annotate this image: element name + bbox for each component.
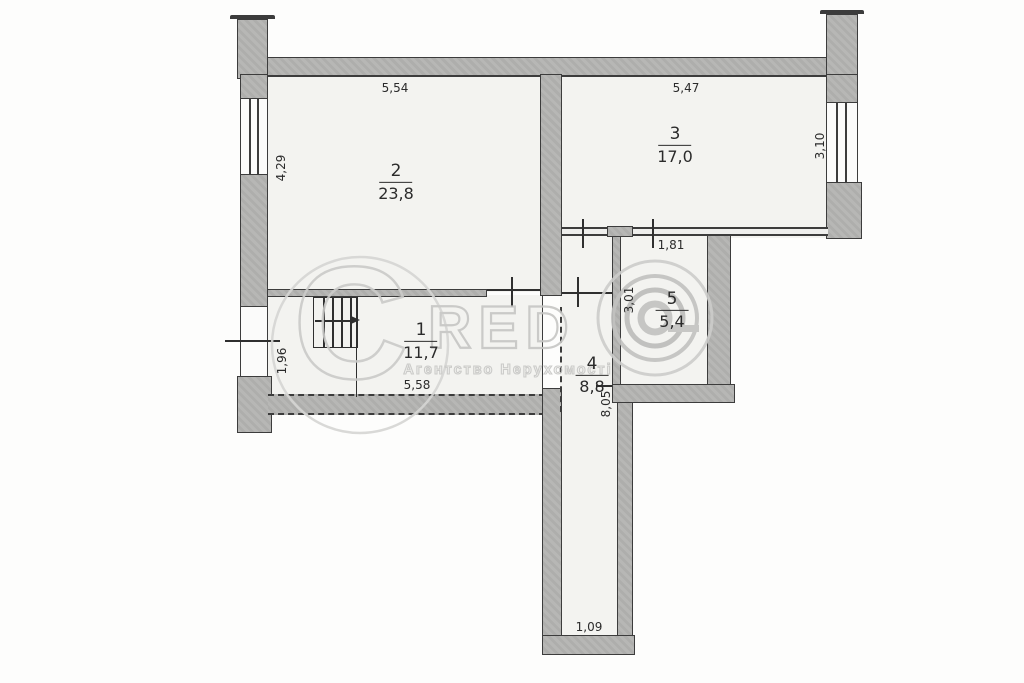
window-symbol-left-bottom [240,306,268,378]
corridor-bottom-wall [542,635,635,655]
dimension-tick [582,219,584,248]
dim-room1-width: 5,58 [404,378,431,392]
room-number: 3 [659,125,692,146]
dim-corridor-width: 1,09 [576,620,603,634]
right-wall-upper [826,74,858,104]
dim-room5-height: 3,01 [622,287,636,314]
stair-tread-line [341,298,343,347]
left-wall-bottom-block [237,376,272,433]
window-glazing-line [249,99,251,175]
room-1-label: 1 11,7 [403,321,439,361]
room-number: 1 [405,321,438,342]
room3-bottom-thin-wall [562,227,828,236]
room-3-label: 3 17,0 [657,125,693,165]
window-glazing-line [845,103,847,183]
room-area: 11,7 [403,344,439,362]
room-area: 5,4 [656,313,689,331]
dimension-tick [511,277,513,307]
window-symbol-right [826,102,858,184]
door-opening-lintel [487,289,540,291]
open-boundary-room1-room4 [560,307,562,412]
dimension-tick [225,340,280,342]
right-pillar-cap [820,10,864,14]
dim-room3-height: 3,10 [813,133,827,160]
left-wall-upper [240,74,268,100]
window-symbol-left-top [240,98,268,176]
corridor-right-wall [617,384,633,655]
partition-room4-room5 [612,235,621,387]
stairs-direction-arrow [315,320,352,322]
room-4-label: 4 8,8 [576,355,609,395]
room-5-label: 5 5,4 [656,290,689,330]
right-wall-lower-block [826,182,862,239]
wall-room2-room3 [540,74,562,296]
dimension-tick [577,277,579,307]
partition-room1-room2 [267,289,487,297]
dim-room1-height: 1,96 [275,348,289,375]
left-pillar-cap [230,15,275,19]
room-number: 4 [576,355,609,376]
room1-bottom-wall [268,394,545,415]
floor-plan-page: C RED Агентство Нерухомості 2 23,8 3 17,… [0,0,1024,683]
room5-bottom-wall [612,384,735,403]
room-2-label: 2 23,8 [378,162,414,202]
dimension-tick [652,219,654,248]
corridor-left-wall [542,388,562,655]
window-glazing-line [257,99,259,175]
window-glazing-line [836,103,838,183]
stair-tread-line [323,298,325,347]
room-number: 2 [380,162,413,183]
dim-room3-width: 5,47 [673,81,700,95]
left-chimney-pillar [237,19,268,79]
stairs-side-line [356,297,357,397]
room5-right-wall [707,235,731,387]
room-number: 5 [656,290,689,311]
left-wall-middle [240,174,268,308]
room-area: 23,8 [378,185,414,203]
door-leaf-line [562,292,612,294]
stair-tread-line [332,298,334,347]
dim-room2-height: 4,29 [274,155,288,182]
room-area: 17,0 [657,148,693,166]
room-3-floor [560,76,830,238]
dim-corridor-length: 8,05 [599,391,613,418]
right-chimney-pillar [826,14,858,79]
dim-room5-door: 1,81 [658,238,685,252]
dim-room2-width: 5,54 [382,81,409,95]
room-4-corridor-floor [560,234,620,639]
room3-bottom-wall-pier [607,226,633,237]
